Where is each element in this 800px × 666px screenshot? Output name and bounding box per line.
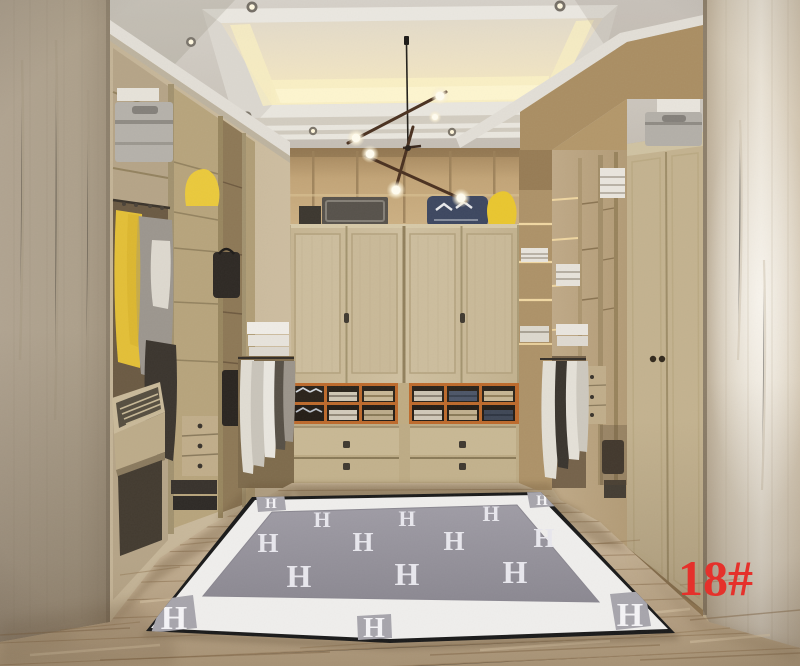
svg-text:18#: 18# xyxy=(678,550,753,606)
